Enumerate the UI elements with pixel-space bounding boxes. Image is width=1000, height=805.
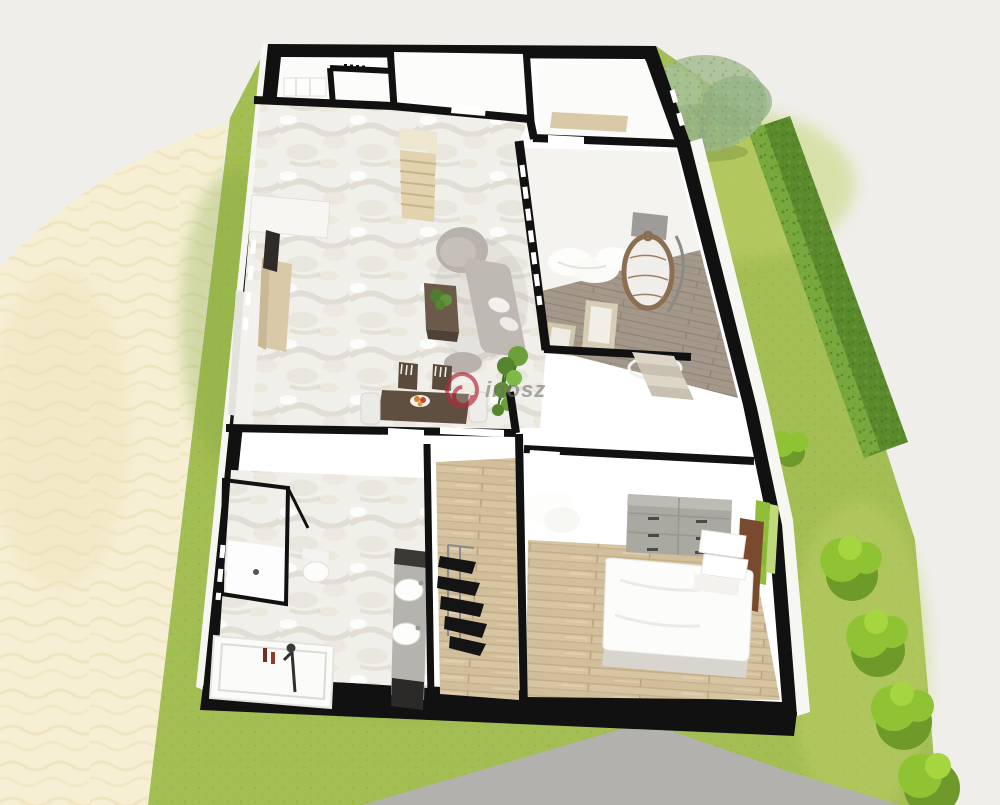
- toilet: [303, 562, 329, 582]
- tv-panel: [263, 230, 280, 272]
- dining-chair-white: [361, 393, 380, 424]
- floor-plan-render: inosz: [0, 0, 1000, 805]
- dining-chair-white: [469, 392, 487, 422]
- shelf-unit: [284, 78, 326, 96]
- toiletry-bottle: [271, 652, 275, 664]
- double-sink-vanity: [391, 548, 428, 710]
- lounge-chair: [582, 300, 618, 352]
- toiletry-bottle: [263, 648, 267, 662]
- bathtub: [210, 636, 334, 708]
- dining-table: [378, 390, 470, 424]
- coffee-table: [424, 283, 459, 342]
- scene-canvas: [0, 0, 1000, 805]
- staircase: [399, 128, 437, 222]
- sink: [392, 623, 420, 645]
- storage-room-floor: [334, 72, 392, 103]
